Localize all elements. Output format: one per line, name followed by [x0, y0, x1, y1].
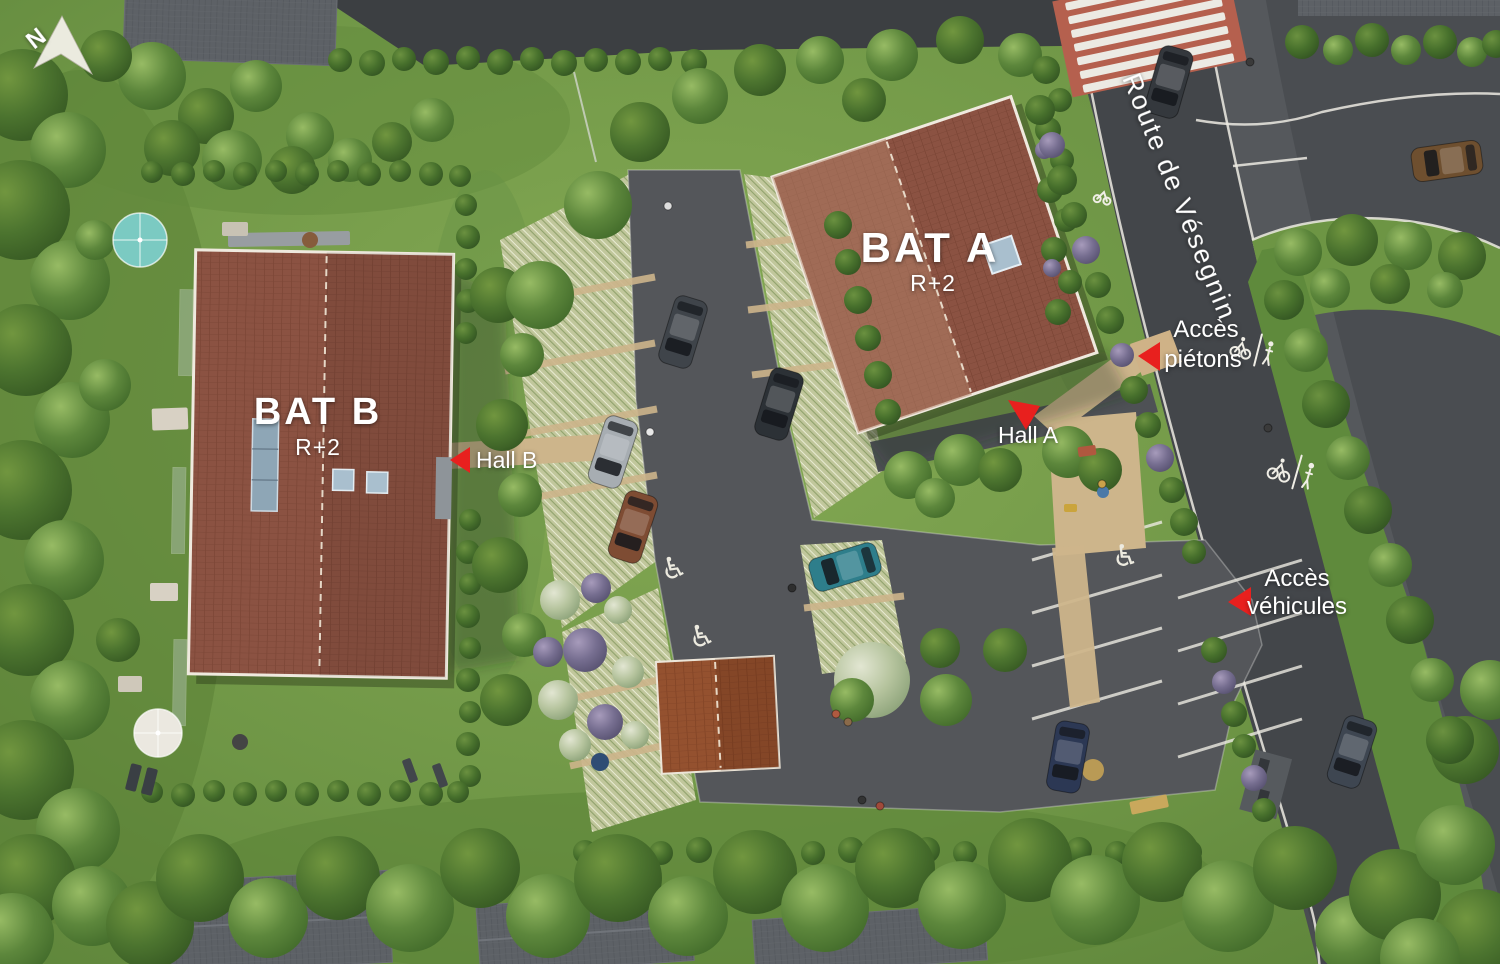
tree	[1410, 658, 1454, 702]
tree	[564, 171, 632, 239]
hedge-bush	[686, 837, 712, 863]
hedge-bush	[141, 161, 163, 183]
hedge-bush	[455, 258, 477, 280]
hedge-bush	[1025, 95, 1055, 125]
hedge-bush	[328, 48, 352, 72]
hedge-bush	[389, 780, 411, 802]
car-roof	[1439, 146, 1464, 175]
hedge-bush	[1135, 412, 1161, 438]
tree	[506, 261, 574, 329]
hedge-bush	[203, 160, 225, 182]
hedge-bush	[1201, 637, 1227, 663]
tree	[80, 30, 132, 82]
hedge-bush	[824, 211, 852, 239]
hedge-bush	[551, 50, 577, 76]
tree	[1284, 328, 1328, 372]
tree	[1415, 805, 1495, 885]
tree	[587, 704, 623, 740]
hedge-bush	[1386, 596, 1434, 644]
hedge-bush	[449, 165, 471, 187]
vehicle-access-label-1: Accès	[1264, 565, 1329, 592]
hedge-bush	[203, 780, 225, 802]
tree	[563, 628, 607, 672]
tree	[476, 399, 528, 451]
tree	[75, 220, 115, 260]
tree	[621, 721, 649, 749]
hedge-bush	[423, 49, 449, 75]
hedge-bush	[835, 249, 861, 275]
tree	[1427, 272, 1463, 308]
hedge-bush	[584, 48, 608, 72]
tree	[1146, 444, 1174, 472]
person	[876, 802, 884, 810]
hedge-bush	[265, 780, 287, 802]
tree	[498, 473, 542, 517]
hedge-bush	[171, 162, 195, 186]
hedge-bush	[327, 160, 349, 182]
tree	[1253, 826, 1337, 910]
hedge-bush	[1041, 237, 1067, 263]
hedge-bush	[855, 325, 881, 351]
tree	[440, 828, 520, 908]
building-bat-b	[168, 249, 461, 730]
tree	[983, 628, 1027, 672]
tree	[866, 29, 918, 81]
tree	[500, 333, 544, 377]
hedge-bush	[456, 46, 480, 70]
person	[844, 718, 852, 726]
hedge-bush	[327, 780, 349, 802]
tree	[915, 478, 955, 518]
skylight	[333, 469, 354, 490]
garden-furniture	[222, 222, 248, 236]
tree	[604, 596, 632, 624]
hedge-bush	[1085, 272, 1111, 298]
garden-item	[1082, 759, 1104, 781]
hedge-bush	[459, 701, 481, 723]
pedestrian-access-label-1: Accès	[1173, 316, 1238, 343]
person	[1098, 480, 1106, 488]
hedge-bush	[359, 50, 385, 76]
hedge-bush	[1096, 306, 1124, 334]
tree	[1212, 670, 1236, 694]
tree	[540, 580, 580, 620]
hedge-bush	[1182, 540, 1206, 564]
tree	[1039, 132, 1065, 158]
hedge-bush	[392, 47, 416, 71]
hedge-bush	[456, 604, 480, 628]
hedge-bush	[265, 160, 287, 182]
hedge-bush	[1170, 508, 1198, 536]
hall-b-entrance-notch	[435, 457, 452, 519]
hedge-bush	[864, 361, 892, 389]
person	[858, 796, 866, 804]
hedge-bush	[1047, 165, 1077, 195]
skylight	[367, 472, 388, 493]
bat-a-label: BAT A	[861, 224, 1000, 271]
hedge-bush	[1221, 701, 1247, 727]
hedge-bush	[487, 49, 513, 75]
tree	[920, 628, 960, 668]
hedge-bush	[459, 509, 481, 531]
hedge-bush	[455, 194, 477, 216]
hedge-bush	[456, 225, 480, 249]
hedge-bush	[1344, 486, 1392, 534]
hedge-bush	[357, 162, 381, 186]
tree	[842, 78, 886, 122]
hedge-bush	[233, 782, 257, 806]
person	[788, 584, 796, 592]
tree	[96, 618, 140, 662]
hedge-bush	[295, 162, 319, 186]
tree	[781, 864, 869, 952]
tree	[372, 122, 412, 162]
shed	[656, 656, 780, 774]
tree	[79, 359, 131, 411]
hedge-bush	[459, 637, 481, 659]
handicap-icon: ♿	[1112, 539, 1139, 574]
tree	[472, 537, 528, 593]
hedge-bush	[875, 399, 901, 425]
garden-item	[232, 734, 248, 750]
tree	[648, 876, 728, 956]
car-roof	[1054, 739, 1083, 765]
tree	[612, 656, 644, 688]
tree	[1370, 264, 1410, 304]
bat-a-level-label: R+2	[910, 270, 956, 296]
tree	[1110, 343, 1134, 367]
site-plan-svg: ♿ ♿ ♿ N BAT B R+2 BAT A	[0, 0, 1500, 964]
tree	[1043, 259, 1061, 277]
bat-b-level-label: R+2	[295, 434, 341, 460]
hedge-bush	[1045, 299, 1071, 325]
tree	[1384, 222, 1432, 270]
garden-item	[591, 753, 609, 771]
hedge-bush	[419, 162, 443, 186]
hedge-bush	[389, 160, 411, 182]
hedge-bush	[1252, 798, 1276, 822]
hedge-bush	[1264, 280, 1304, 320]
hedge-bush	[648, 47, 672, 71]
tree	[533, 637, 563, 667]
hedge-bush	[456, 732, 480, 756]
hall-b-label: Hall B	[476, 447, 537, 473]
tree	[366, 864, 454, 952]
tree	[581, 573, 611, 603]
person	[1264, 424, 1272, 432]
hedge-bush	[1302, 380, 1350, 428]
masterplan-scene: ♿ ♿ ♿ N BAT B R+2 BAT A	[0, 0, 1500, 964]
tree	[936, 16, 984, 64]
tree	[480, 674, 532, 726]
tree	[672, 68, 728, 124]
tree	[1241, 765, 1267, 791]
garden-furniture	[118, 676, 142, 692]
hedge-bush	[615, 49, 641, 75]
hedge-bush	[447, 781, 469, 803]
tree	[1310, 268, 1350, 308]
garden-furniture	[1064, 504, 1077, 512]
tree	[1326, 436, 1370, 480]
hedge-bush	[233, 162, 257, 186]
tree	[978, 448, 1022, 492]
tree	[920, 674, 972, 726]
hedge-bush	[1159, 477, 1185, 503]
hedge-bush	[1120, 376, 1148, 404]
handicap-icon: ♿	[686, 618, 718, 656]
hedge-bush	[1426, 716, 1474, 764]
hedge-bush	[1355, 23, 1389, 57]
hedge-bush	[801, 841, 825, 865]
garden-furniture	[152, 407, 189, 430]
person	[832, 710, 840, 718]
person	[646, 428, 654, 436]
tree	[228, 878, 308, 958]
hall-a-label: Hall A	[998, 422, 1059, 448]
tree	[734, 44, 786, 96]
parasol-top	[138, 238, 143, 243]
handicap-icon: ♿	[658, 550, 690, 588]
hedge-bush	[1423, 25, 1457, 59]
garden-item	[302, 232, 318, 248]
hedge-bush	[456, 668, 480, 692]
garden-furniture	[150, 583, 178, 601]
terrace	[179, 290, 193, 376]
tree	[538, 680, 578, 720]
pedestrian-access-label-2: piétons	[1164, 346, 1241, 373]
person	[664, 202, 672, 210]
terrace	[172, 639, 186, 725]
neighbor-roof-northeast	[1298, 0, 1500, 16]
hedge-bush	[1061, 202, 1087, 228]
tree	[1072, 236, 1100, 264]
tree	[1368, 543, 1412, 587]
bat-b-roof-east-slope	[319, 252, 453, 678]
tree	[1274, 228, 1322, 276]
tree	[559, 729, 591, 761]
bat-b-label: BAT B	[254, 391, 382, 433]
hedge-bush	[520, 47, 544, 71]
parasol-top	[156, 731, 161, 736]
vehicle-access-label-2: véhicules	[1247, 593, 1347, 620]
hedge-bush	[1032, 56, 1060, 84]
person	[1246, 58, 1254, 66]
terrace	[171, 467, 185, 553]
hedge-bush	[1285, 25, 1319, 59]
tree	[1391, 35, 1421, 65]
hedge-bush	[1058, 270, 1082, 294]
hedge-bush	[171, 783, 195, 807]
tree	[796, 36, 844, 84]
tree	[230, 60, 282, 112]
hedge-bush	[295, 782, 319, 806]
tree	[610, 102, 670, 162]
hedge-bush	[357, 782, 381, 806]
hedge-bush	[844, 286, 872, 314]
tree	[1323, 35, 1353, 65]
tree	[934, 434, 986, 486]
hedge-bush	[455, 322, 477, 344]
hedge-bush	[1232, 734, 1256, 758]
tree	[1326, 214, 1378, 266]
tree	[410, 98, 454, 142]
